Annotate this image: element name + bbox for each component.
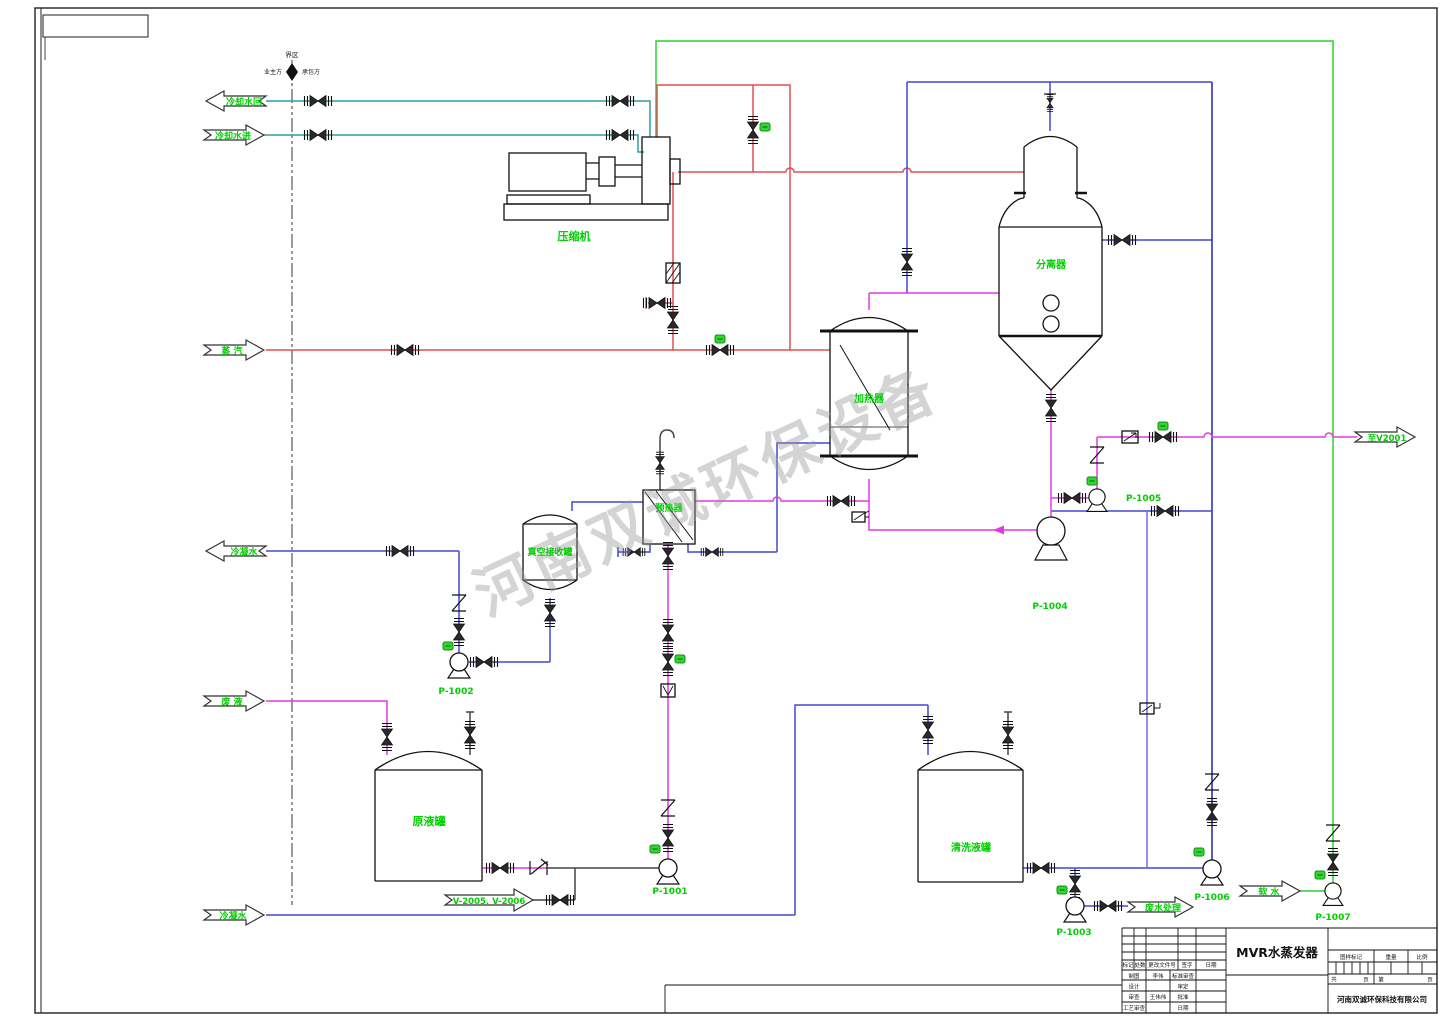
label-vacuum-receiver: 真空接收罐 xyxy=(527,546,572,558)
stream-label-to-v2001: 至V2001 xyxy=(1368,434,1407,444)
battery-limit: 界区 业主方 承包方 xyxy=(264,51,320,905)
label-p1004: P-1004 xyxy=(1032,602,1067,612)
label-p1001: P-1001 xyxy=(652,887,687,897)
pid-diagram: 界区 业主方 承包方 xyxy=(0,0,1448,1024)
equipment-cleaning-tank xyxy=(918,752,1023,883)
flow-direction-arrowhead xyxy=(993,526,1004,535)
pump-p1001 xyxy=(650,845,679,884)
label-p1002: P-1002 xyxy=(438,687,473,697)
role-process-check: 工艺审查 xyxy=(1123,1004,1146,1012)
rev-date-header: 日期 xyxy=(1205,962,1217,969)
label-p1003: P-1003 xyxy=(1056,928,1091,938)
role-ratify: 批准 xyxy=(1177,993,1189,1001)
sheet-total-label: 共 xyxy=(1331,976,1337,984)
stream-label-cooling-supply: 冷却水进 xyxy=(215,130,251,142)
boundary-diamond-icon xyxy=(286,63,298,81)
pump-p1004 xyxy=(1035,517,1067,560)
label-compressor: 压缩机 xyxy=(558,229,591,243)
stream-label-wastewater: 废水处理 xyxy=(1145,902,1181,914)
role-std-check: 标准审查 xyxy=(1172,972,1195,980)
rev-sign-header: 签字 xyxy=(1181,961,1193,969)
stream-label-v2005-v2006: V-2005, V-2006 xyxy=(453,897,526,907)
stream-label-steam: 蒸 汽 xyxy=(221,345,242,357)
pipes-process-liquid xyxy=(266,293,1357,868)
sheet-no-label: 第 xyxy=(1378,976,1384,984)
rev-doc-header: 更改文件号 xyxy=(1148,961,1176,969)
valves-and-fittings xyxy=(305,94,1341,912)
weight-header: 重量 xyxy=(1385,953,1397,961)
label-cleaning-tank: 清洗液罐 xyxy=(951,841,991,854)
check-valve-icon xyxy=(530,859,548,875)
pipes-vapor-loop xyxy=(907,82,1212,860)
stream-label-waste-liquid: 废 液 xyxy=(221,696,243,708)
sight-glass-icon xyxy=(1043,316,1059,332)
label-p1005: P-1005 xyxy=(1126,494,1161,504)
boundary-top-label: 界区 xyxy=(286,51,300,59)
role-check: 审查 xyxy=(1128,993,1140,1001)
boundary-left-label: 业主方 xyxy=(264,68,282,76)
role-design: 设计 xyxy=(1128,983,1140,991)
scale-header: 比例 xyxy=(1416,953,1428,961)
sight-glass-icon xyxy=(1043,295,1059,311)
role-draft-name: 李伟 xyxy=(1152,972,1164,980)
stream-labels: 冷却水回 冷却水进 蒸 汽 冷凝水 废 液 冷凝水 V-2005, V-2006… xyxy=(215,96,1406,922)
equipment-labels: 压缩机 分离器 加热器 真空接收罐 预热器 原液罐 清洗液罐 xyxy=(413,229,1068,854)
label-preheater: 预热器 xyxy=(655,502,683,514)
label-separator: 分离器 xyxy=(1036,258,1067,271)
role-approve: 审定 xyxy=(1177,983,1189,991)
pump-p1002 xyxy=(443,642,470,678)
flow-arrows xyxy=(204,91,1415,925)
equipment-compressor xyxy=(504,137,680,220)
rev-mark-header: 标记 xyxy=(1122,961,1134,969)
pump-tag-icon xyxy=(1057,886,1067,894)
stream-label-condensate-out: 冷凝水 xyxy=(230,546,258,558)
valve-tag-icon xyxy=(760,123,770,131)
valve-tag-icon xyxy=(675,655,685,663)
pump-tag-icon xyxy=(1087,477,1097,485)
boundary-right-label: 承包方 xyxy=(302,68,320,76)
sheet-no-unit: 页 xyxy=(1427,977,1433,984)
rev-qty-header: 处数 xyxy=(1134,961,1146,969)
pump-tag-icon xyxy=(650,845,660,853)
label-p1006: P-1006 xyxy=(1194,893,1229,903)
stream-label-cooling-return: 冷却水回 xyxy=(226,96,262,108)
pump-p1007 xyxy=(1315,871,1343,905)
valve-tag-icon xyxy=(715,335,725,343)
stamp-header: 图样标记 xyxy=(1340,953,1363,961)
pump-p1006 xyxy=(1194,848,1223,885)
frame-corner-box xyxy=(43,15,148,37)
stream-label-condensate-in: 冷凝水 xyxy=(219,910,247,922)
company-name: 河南双诚环保科技有限公司 xyxy=(1337,994,1427,1004)
title-block: 标记 处数 更改文件号 签字 日期 制图 李伟 标准审查 设计 审定 审查 王伟… xyxy=(665,928,1437,1013)
pipes-cooling-water xyxy=(264,101,650,152)
sheet-total-unit: 页 xyxy=(1363,977,1369,984)
pump-tag-icon xyxy=(1194,848,1204,856)
valve-tag-icon xyxy=(1158,422,1168,430)
label-raw-tank: 原液罐 xyxy=(413,814,446,828)
pid-drawing-sheet: 界区 业主方 承包方 xyxy=(0,0,1448,1024)
label-p1007: P-1007 xyxy=(1315,913,1350,923)
pump-tag-icon xyxy=(443,642,453,650)
role-draft: 制图 xyxy=(1128,972,1140,980)
stream-label-soft-water: 软 水 xyxy=(1258,886,1280,898)
title-block-right-text: 图样标记 重量 比例 共 页 第 页 xyxy=(1331,953,1433,984)
drawing-title: MVR水蒸发器 xyxy=(1236,945,1318,960)
pump-p1005 xyxy=(1087,477,1107,511)
role-date: 日期 xyxy=(1177,1005,1189,1012)
pipes-cleaning-circuit xyxy=(1023,511,1212,906)
label-heater: 加热器 xyxy=(853,392,885,405)
instrument-icon xyxy=(852,511,869,522)
instrument-icon xyxy=(1140,703,1160,714)
pipes-steam-vapor xyxy=(266,85,1024,350)
pump-tag-icon xyxy=(1315,871,1325,879)
role-check-name: 王伟伟 xyxy=(1150,993,1167,1001)
